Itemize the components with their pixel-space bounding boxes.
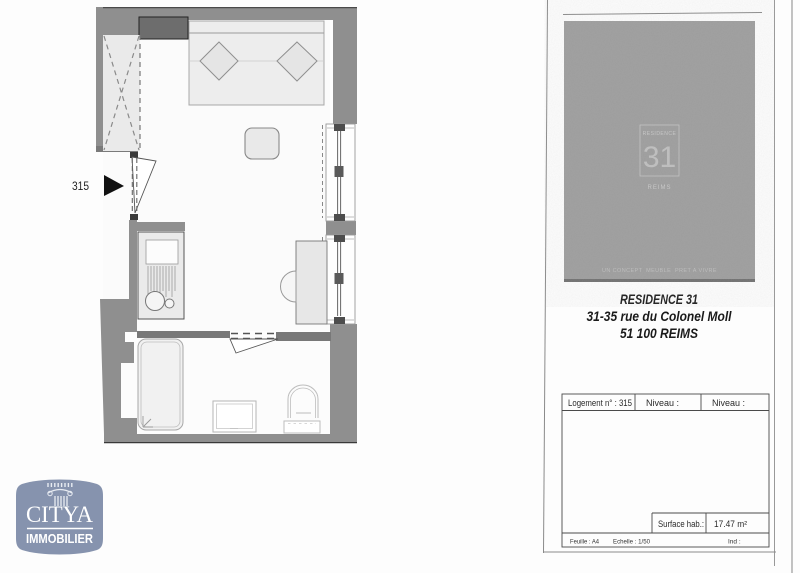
svg-text:Niveau :: Niveau : [646, 398, 679, 408]
svg-text:31-35 rue du Colonel Moll: 31-35 rue du Colonel Moll [587, 308, 733, 324]
svg-text:Ind :: Ind : [728, 539, 741, 546]
svg-text:Echelle : 1/50: Echelle : 1/50 [613, 539, 650, 546]
svg-text:315: 315 [72, 181, 89, 193]
svg-text:Feuille : A4: Feuille : A4 [570, 539, 599, 546]
svg-text:RESIDENCE 31: RESIDENCE 31 [620, 291, 698, 307]
svg-text:51 100 REIMS: 51 100 REIMS [620, 325, 699, 341]
svg-text:IMMOBILIER: IMMOBILIER [26, 532, 93, 546]
svg-text:Niveau :: Niveau : [712, 398, 745, 408]
svg-text:Surface hab.:: Surface hab.: [658, 519, 704, 529]
svg-text:17.47 m²: 17.47 m² [714, 519, 747, 529]
svg-text:Logement n° : 315: Logement n° : 315 [568, 398, 632, 408]
svg-text:CITYA: CITYA [26, 502, 93, 527]
